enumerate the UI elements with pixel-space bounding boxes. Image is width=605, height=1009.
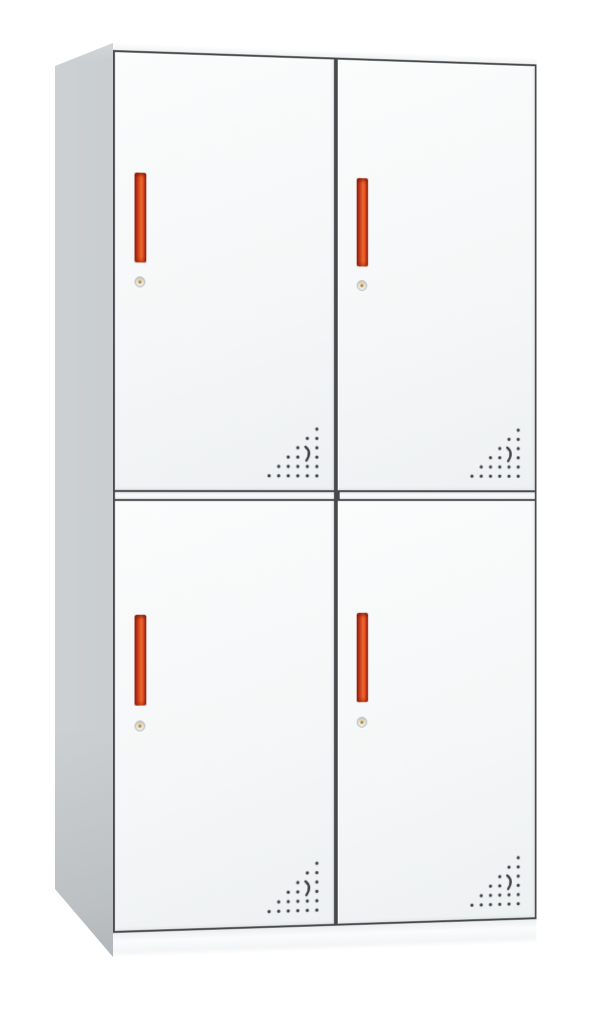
door-handle [135,615,147,706]
keyhole-lock [357,717,367,728]
vent-perforation [266,860,321,916]
keyhole-lock [135,276,146,287]
door-handle [357,613,368,702]
door-handle [357,178,368,267]
vent-perforation [469,855,523,910]
locker-door-top-right [336,58,537,493]
locker-door-bottom-right [336,499,537,926]
door-handle [135,173,147,263]
cabinet-center-stile [334,492,340,499]
vent-perforation [469,427,523,481]
vent-perforation [266,426,321,480]
keyhole-lock [135,720,146,731]
cabinet-front [113,43,537,957]
keyhole-lock [357,280,367,291]
cabinet-mid-rail [113,492,537,499]
locker-door-top-left [113,50,336,492]
locker-cabinet-photo: White two-tier four-door steel locker ca… [0,0,605,1009]
photo-caption: White two-tier four-door steel locker ca… [0,0,1,1]
locker-door-bottom-left [113,499,336,933]
